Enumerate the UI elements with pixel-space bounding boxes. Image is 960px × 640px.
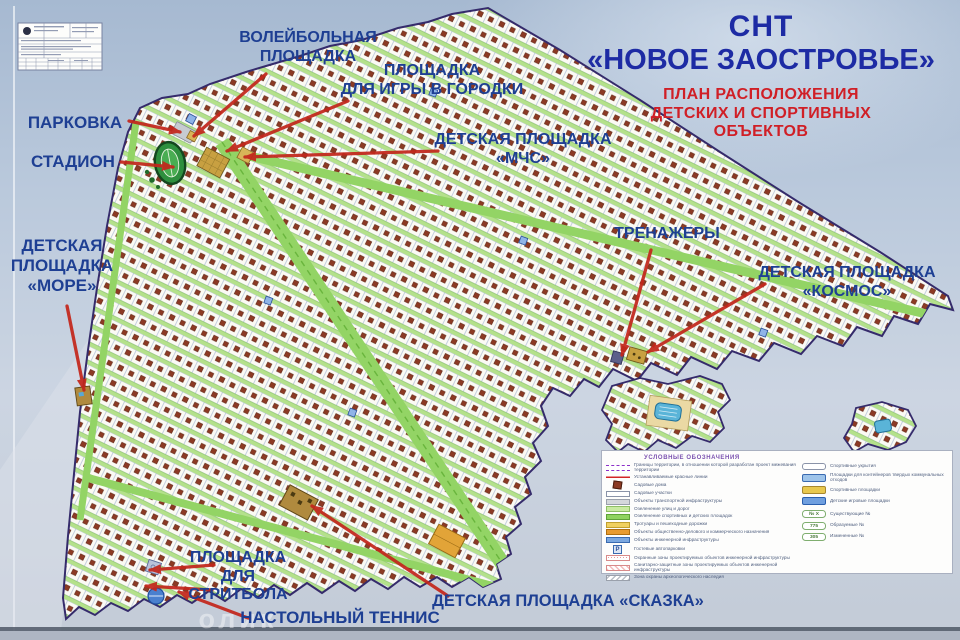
bin-blue-swatch-icon [802, 474, 826, 482]
legend-title: УСЛОВНЫЕ ОБОЗНАЧЕНИЯ [644, 455, 950, 461]
legend-right-column: Спортивные укрытияПлощадки для контейнер… [802, 463, 950, 582]
east-pool-shape [874, 419, 892, 434]
snt-name: «НОВОЕ ЗАОСТРОВЬЕ» [562, 43, 960, 77]
legend-row: Садовые дома [606, 481, 802, 489]
pill-white-swatch-icon [802, 463, 826, 470]
legend-row: Зона охраны археологического наследия [606, 575, 802, 581]
plan-sheet-photo: олик СНТ «НОВОЕ ЗАОСТРОВЬЕ» ПЛАН РАСПОЛО… [0, 0, 960, 640]
plot-number-pill: 305 [802, 533, 826, 541]
watermark-text: олик [198, 604, 277, 634]
tree [156, 185, 160, 189]
gray-swatch-icon [606, 499, 630, 505]
hatch-gray-swatch-icon [606, 575, 630, 581]
snt-abbrev: СНТ [562, 10, 960, 43]
legend-row: Садовые участки [606, 491, 802, 497]
legend-row: Границы территории, в отношении которой … [606, 463, 802, 473]
table-tennis-shape [148, 588, 164, 604]
legend-row: Объекты общественно-делового и коммерчес… [606, 529, 802, 535]
tree [149, 177, 155, 183]
yellow-swatch-icon [606, 522, 630, 528]
legend-row: Объекты инженерной инфраструктуры [606, 537, 802, 543]
hatch-pink-swatch-icon [606, 565, 630, 571]
legend-numbered-row: 775Образуемые № [802, 522, 950, 530]
legend-row: Озеленение спортивных и детских площадок [606, 514, 802, 520]
legend-row: Охранные зоны проектируемых объектов инж… [606, 555, 802, 561]
legend-row: Площадки для контейнеров твердых коммуна… [802, 473, 950, 483]
tree [145, 170, 149, 174]
lightgreen-swatch-icon [606, 506, 630, 512]
legend-row: Озеленение улиц и дорог [606, 506, 802, 512]
sport-yellow-swatch-icon [802, 486, 826, 494]
legend-row: Объекты транспортной инфраструктуры [606, 499, 802, 505]
plan-title-block: СНТ «НОВОЕ ЗАОСТРОВЬЕ» ПЛАН РАСПОЛОЖЕНИЯ… [562, 10, 960, 142]
legend-row: Тротуары и пешеходные дорожки [606, 522, 802, 528]
legend-row: PГостевые автопарковки [606, 545, 802, 554]
plan-subtitle: ПЛАН РАСПОЛОЖЕНИЯ ДЕТСКИХ И СПОРТИВНЫХ О… [562, 86, 960, 142]
legend-row: Детские игровые площадки [802, 497, 950, 505]
legend-numbered-row: № ХСуществующие № [802, 510, 950, 518]
parking-swatch-icon: P [613, 545, 622, 554]
blue-swatch-icon [606, 537, 630, 543]
plot-number-pill: № Х [802, 510, 826, 518]
legend-left-column: Границы территории, в отношении которой … [606, 463, 802, 582]
dots-pink-swatch-icon [606, 555, 630, 561]
pool-shape [646, 395, 692, 431]
white-swatch-icon [606, 491, 630, 497]
legend-row: Санитарно-защитные зоны проектируемых об… [606, 563, 802, 573]
legend-numbered-row: 305Измененные № [802, 533, 950, 541]
legend-box: УСЛОВНЫЕ ОБОЗНАЧЕНИЯ Границы территории,… [601, 450, 953, 574]
legend-row: Спортивные площадки [802, 486, 950, 494]
legend-row: Спортивные укрытия [802, 463, 950, 470]
bottom-road-line [0, 627, 960, 631]
bottom-band [0, 631, 960, 640]
play-blue-swatch-icon [802, 497, 826, 505]
legend-row: Устанавливаемые красные линии [606, 475, 802, 480]
plot-number-pill: 775 [802, 522, 826, 530]
house-swatch-icon [612, 481, 622, 490]
red-line-swatch-icon [606, 476, 630, 478]
title-block-stamp [18, 23, 102, 70]
orange-swatch-icon [606, 529, 630, 535]
green-swatch-icon [606, 514, 630, 520]
dashed-purple-swatch-icon [606, 465, 630, 471]
